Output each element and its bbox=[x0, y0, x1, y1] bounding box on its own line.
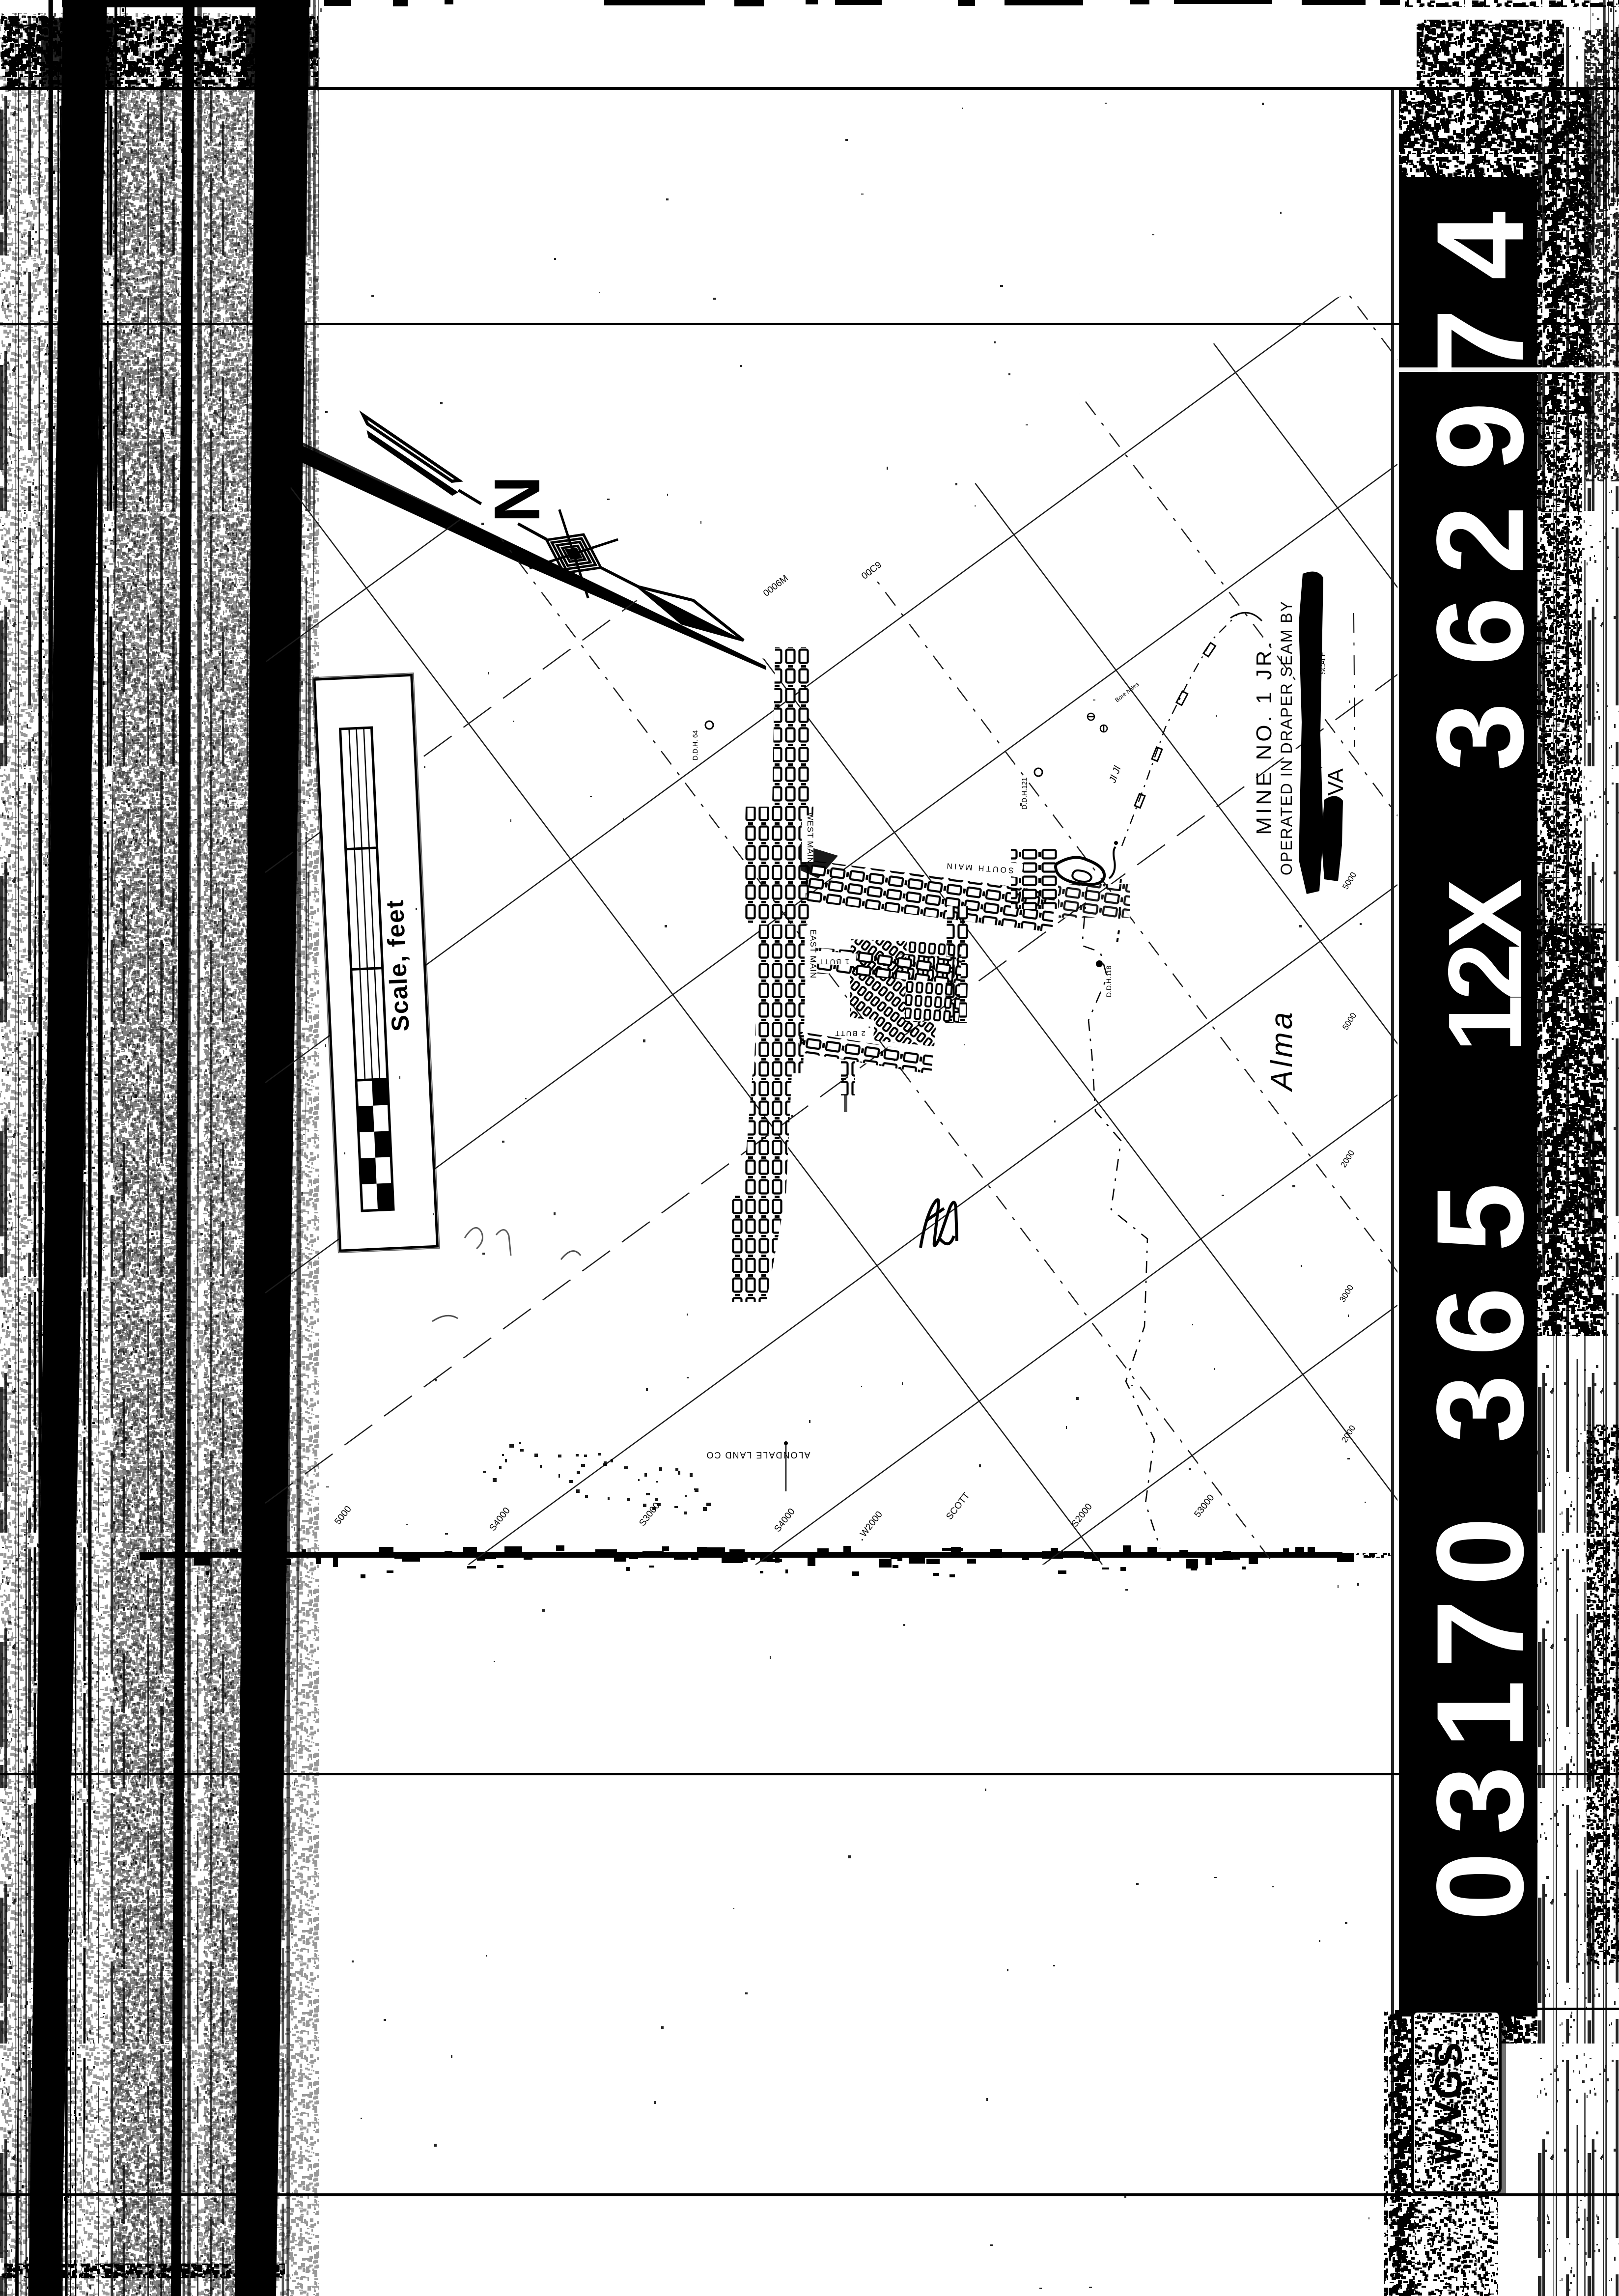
svg-text:WEST MAIN: WEST MAIN bbox=[806, 812, 815, 864]
svg-text:D.D.H. 64: D.D.H. 64 bbox=[691, 730, 699, 760]
svg-text:MINE NO. 1 JR.: MINE NO. 1 JR. bbox=[1252, 639, 1276, 835]
svg-text:3: 3 bbox=[1411, 1374, 1549, 1443]
svg-text:6: 6 bbox=[1411, 1287, 1549, 1356]
svg-text:9: 9 bbox=[1411, 402, 1549, 471]
svg-text:WVGS: WVGS bbox=[1426, 2041, 1470, 2164]
svg-text:VA: VA bbox=[1324, 768, 1348, 796]
svg-text:7: 7 bbox=[1411, 1599, 1549, 1668]
svg-text:ALONDALE LAND CO: ALONDALE LAND CO bbox=[705, 1450, 810, 1460]
svg-text:OPERATED IN DRAPER SEAM BY: OPERATED IN DRAPER SEAM BY bbox=[1278, 600, 1295, 875]
svg-text:2: 2 bbox=[1411, 505, 1549, 574]
svg-text:D.D.H.118: D.D.H.118 bbox=[1105, 965, 1113, 997]
svg-text:1: 1 bbox=[1411, 1680, 1549, 1749]
svg-text:EAST MAIN: EAST MAIN bbox=[809, 929, 818, 979]
svg-text:3: 3 bbox=[1411, 1766, 1549, 1835]
svg-text:SCALE: SCALE bbox=[1319, 652, 1327, 674]
svg-text:7: 7 bbox=[1411, 308, 1549, 377]
svg-text:1 BUTT: 1 BUTT bbox=[818, 957, 849, 966]
svg-text:3: 3 bbox=[1411, 702, 1549, 771]
svg-text:0: 0 bbox=[1411, 1852, 1549, 1921]
svg-text:5: 5 bbox=[1411, 1183, 1549, 1252]
svg-text:0: 0 bbox=[1411, 1517, 1549, 1586]
svg-text:6: 6 bbox=[1411, 597, 1549, 666]
svg-text:2 BUTT: 2 BUTT bbox=[834, 1029, 865, 1037]
svg-text:4: 4 bbox=[1411, 211, 1549, 280]
svg-text:Alma: Alma bbox=[1265, 1009, 1299, 1092]
svg-text:12X: 12X bbox=[1426, 880, 1543, 1053]
svg-text:N: N bbox=[481, 476, 553, 523]
